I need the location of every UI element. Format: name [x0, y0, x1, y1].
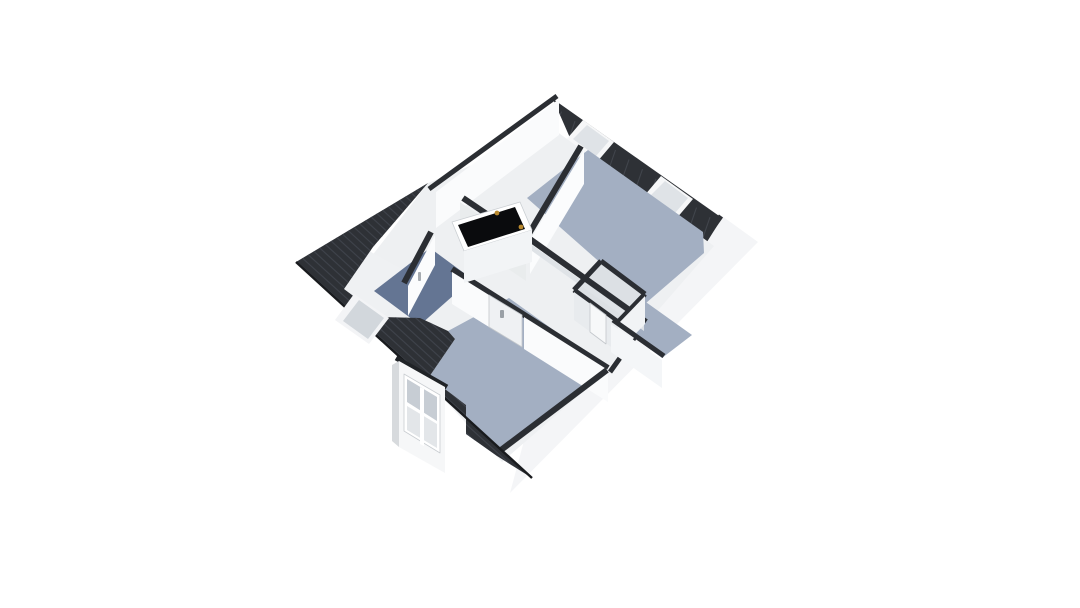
door-handle-bathroom	[418, 272, 421, 281]
floor-plan-3d-render	[0, 0, 1080, 608]
door-handle-room-bottom	[500, 310, 504, 318]
dormer-window-mullion	[420, 387, 424, 446]
dormer-side	[392, 361, 399, 447]
floor-plan-page	[0, 0, 1080, 608]
stair-hinge-1	[495, 211, 500, 216]
stair-hinge-2	[519, 225, 524, 230]
